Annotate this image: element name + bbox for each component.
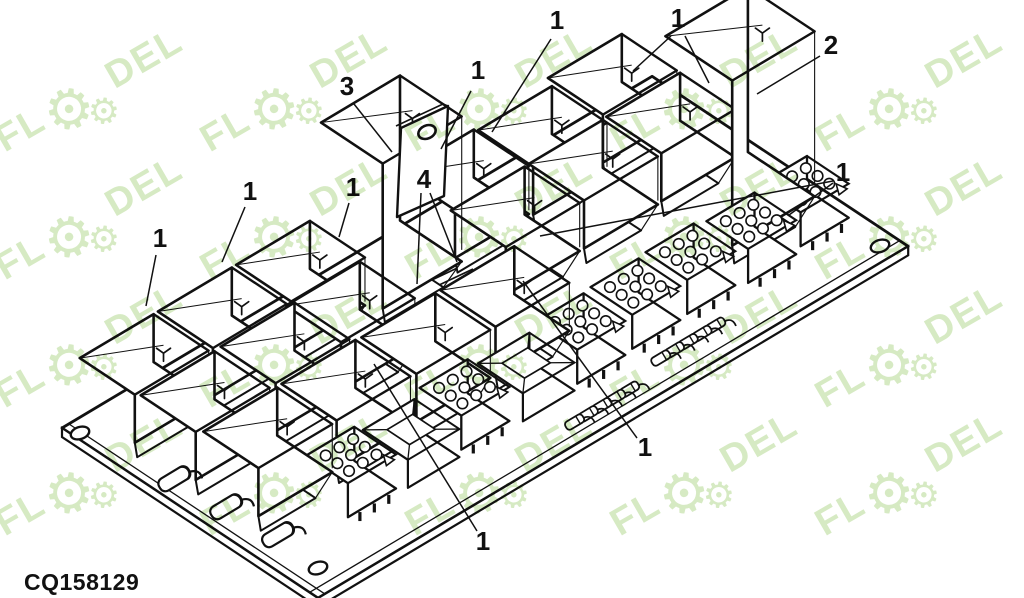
callout-label-1: 1 xyxy=(476,526,490,556)
part-code: CQ158129 xyxy=(24,569,139,596)
callout-label-1: 1 xyxy=(471,55,485,85)
pin-hole xyxy=(485,382,496,393)
pin-hole xyxy=(563,308,574,319)
callout-label-1: 1 xyxy=(671,3,685,33)
callout-label-1: 1 xyxy=(550,5,564,35)
pin-hole xyxy=(632,265,643,276)
pin-hole xyxy=(445,390,456,401)
pin-hole xyxy=(587,324,598,335)
callout-label-1: 1 xyxy=(638,432,652,462)
relay-top-mark xyxy=(313,255,327,268)
pin-hole xyxy=(461,366,472,377)
pin-hole xyxy=(447,374,458,385)
pin-hole xyxy=(577,300,588,311)
pin-hole xyxy=(699,238,710,249)
callout-label-2: 2 xyxy=(824,30,838,60)
pin-hole xyxy=(734,208,745,219)
pin-hole xyxy=(600,316,611,327)
pin-hole xyxy=(697,254,708,265)
pin-hole xyxy=(360,442,371,453)
pin-hole xyxy=(771,215,782,226)
callout-label-1: 1 xyxy=(836,157,850,187)
callout-label-4: 4 xyxy=(417,164,432,194)
leader-line xyxy=(633,36,671,71)
pin-hole xyxy=(732,224,743,235)
pin-hole xyxy=(575,316,586,327)
pin-hole xyxy=(685,246,696,257)
leader-line xyxy=(146,255,156,306)
relay-top-mark xyxy=(625,68,639,81)
callout-label-1: 1 xyxy=(243,176,257,206)
pin-hole xyxy=(644,273,655,284)
pin-hole xyxy=(371,449,382,460)
pin-hole xyxy=(589,308,600,319)
parts-diagram-page: 311121111411 CQ158129 FL⚙⚙DELFL⚙⚙DELFL⚙⚙… xyxy=(0,0,1024,598)
pin-hole xyxy=(673,239,684,250)
pin-hole xyxy=(801,163,812,174)
pin-hole xyxy=(721,216,732,227)
relay-top-mark xyxy=(755,28,769,41)
pin-hole xyxy=(711,246,722,257)
pin-hole xyxy=(616,290,627,301)
leader-line xyxy=(222,207,245,262)
pin-hole xyxy=(320,450,331,461)
relay-top-mark xyxy=(235,302,249,315)
pin-hole xyxy=(628,297,639,308)
pin-hole xyxy=(459,382,470,393)
pin-hole xyxy=(744,231,755,242)
pin-hole xyxy=(471,390,482,401)
pin-hole xyxy=(746,215,757,226)
pin-hole xyxy=(642,289,653,300)
pin-hole xyxy=(758,223,769,234)
relay-top-mark xyxy=(157,348,171,361)
callout-label-1: 1 xyxy=(153,223,167,253)
callout-label-1: 1 xyxy=(346,172,360,202)
pin-hole xyxy=(346,450,357,461)
pin-hole xyxy=(573,332,584,343)
diagram-canvas: 311121111411 xyxy=(0,0,1024,598)
pin-hole xyxy=(618,274,629,285)
pin-hole xyxy=(344,466,355,477)
callout-label-3: 3 xyxy=(340,71,354,101)
leader-line xyxy=(757,56,820,94)
pin-hole xyxy=(656,281,667,292)
pin-hole xyxy=(348,434,359,445)
pin-hole xyxy=(760,207,771,218)
pin-hole xyxy=(473,374,484,385)
pin-hole xyxy=(332,458,343,469)
pin-hole xyxy=(334,442,345,453)
pin-hole xyxy=(660,247,671,258)
pin-hole xyxy=(812,171,823,182)
pin-hole xyxy=(630,281,641,292)
pin-hole xyxy=(687,230,698,241)
pin-hole xyxy=(683,262,694,273)
pin-hole xyxy=(748,199,759,210)
pin-hole xyxy=(671,255,682,266)
pin-hole xyxy=(357,457,368,468)
leader-line xyxy=(339,203,349,237)
pin-hole xyxy=(605,282,616,293)
pin-hole xyxy=(457,398,468,409)
pin-hole xyxy=(434,383,445,394)
